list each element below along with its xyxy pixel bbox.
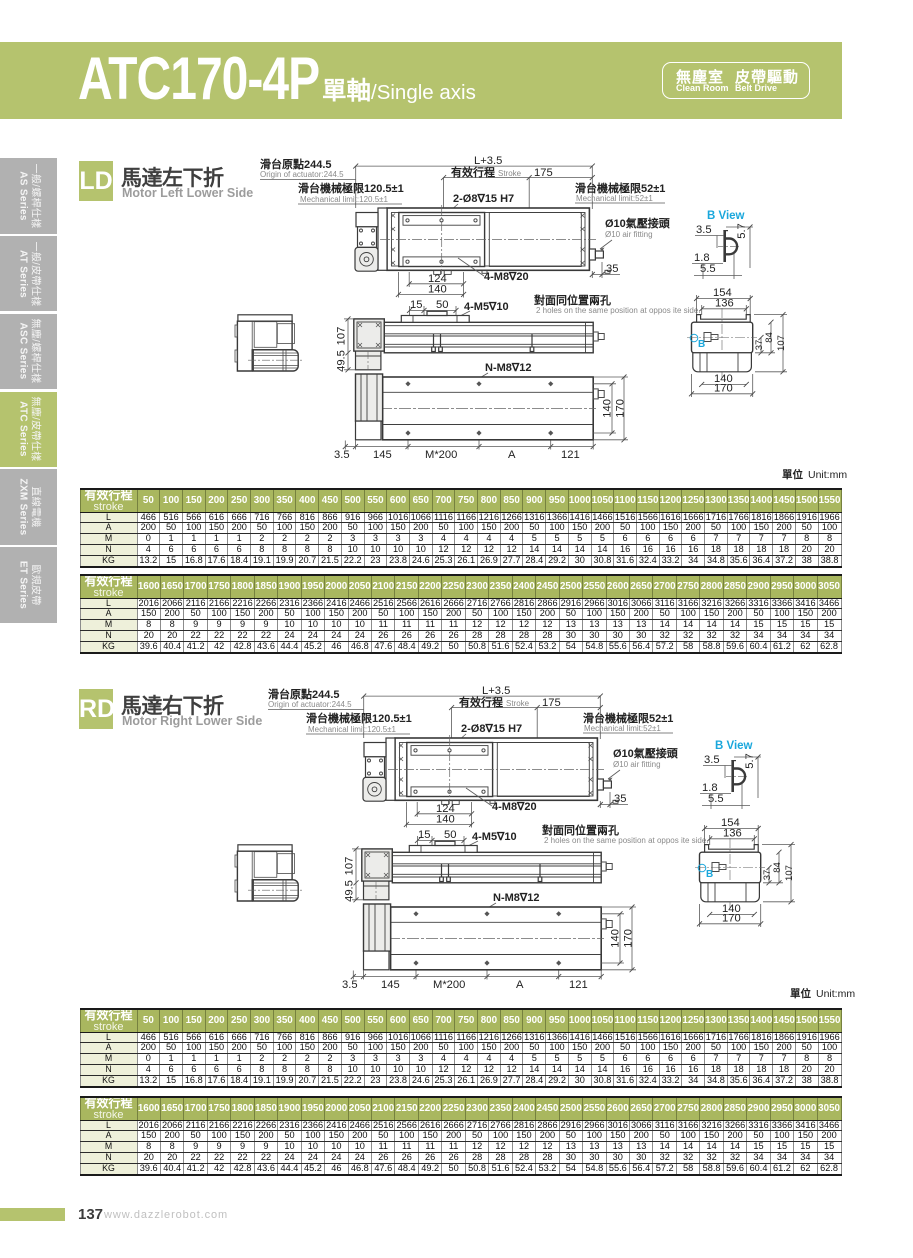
svg-text:L+3.5: L+3.5 [474,155,502,167]
svg-text:Unit:mm: Unit:mm [808,469,847,481]
svg-text:對面同位置兩孔: 對面同位置兩孔 [534,293,611,307]
svg-text:5.7: 5.7 [736,223,748,239]
svg-text:A: A [508,449,516,461]
svg-text:5.7: 5.7 [744,753,756,769]
svg-text:145: 145 [381,979,400,991]
svg-text:5.5: 5.5 [708,793,724,805]
svg-text:49.5: 49.5 [336,350,348,372]
svg-text:107: 107 [344,857,356,876]
svg-text:Stroke: Stroke [506,699,530,708]
svg-text:49.5: 49.5 [344,880,356,902]
svg-text:3.5: 3.5 [342,979,358,991]
svg-text:35: 35 [614,793,626,805]
svg-text:Ø10 air fitting: Ø10 air fitting [605,230,653,239]
svg-text:170: 170 [615,399,627,418]
svg-text:A: A [516,979,524,991]
svg-text:對面同位置兩孔: 對面同位置兩孔 [542,823,619,837]
svg-text:單位: 單位 [790,987,811,1000]
svg-text:15: 15 [418,829,430,841]
svg-text:N-M8∇12: N-M8∇12 [493,892,539,904]
svg-text:175: 175 [534,167,553,179]
svg-text:136: 136 [715,298,734,310]
svg-text:107: 107 [336,327,348,346]
svg-text:有效行程: 有效行程 [459,695,503,709]
svg-text:170: 170 [714,383,733,395]
svg-text:Ø10氣壓接頭: Ø10氣壓接頭 [605,216,671,230]
svg-text:B: B [706,869,713,880]
svg-text:Mechanical limit:52±1: Mechanical limit:52±1 [584,724,661,733]
svg-text:140: 140 [602,399,614,418]
svg-text:136: 136 [723,828,742,840]
svg-text:107: 107 [776,335,787,351]
svg-text:L+3.5: L+3.5 [482,685,510,697]
svg-text:B View: B View [715,740,753,752]
svg-text:3.5: 3.5 [696,224,712,236]
svg-text:145: 145 [373,449,392,461]
svg-text:滑台機械極限52±1: 滑台機械極限52±1 [575,181,665,195]
svg-text:Origin of actuator:244.5: Origin of actuator:244.5 [268,700,352,709]
svg-text:84: 84 [764,332,775,343]
svg-text:有效行程: 有效行程 [451,165,495,179]
svg-text:Unit:mm: Unit:mm [816,988,855,1000]
svg-text:Ø10氣壓接頭: Ø10氣壓接頭 [613,746,679,760]
svg-text:Mechanical limit:120.5±1: Mechanical limit:120.5±1 [300,195,389,204]
svg-text:140: 140 [436,814,455,826]
svg-text:滑台機械極限120.5±1: 滑台機械極限120.5±1 [298,181,404,195]
svg-text:35: 35 [606,263,618,275]
svg-text:滑台原點244.5: 滑台原點244.5 [260,157,332,171]
svg-text:140: 140 [610,929,622,948]
svg-text:4-M5∇10: 4-M5∇10 [472,831,517,843]
svg-text:107: 107 [784,865,795,881]
svg-text:84: 84 [772,862,783,873]
svg-text:Mechanical limit:52±1: Mechanical limit:52±1 [576,194,653,203]
svg-text:2-Ø8∇15 H7: 2-Ø8∇15 H7 [453,193,514,205]
svg-text:5.5: 5.5 [700,263,716,275]
svg-text:3.5: 3.5 [704,754,720,766]
svg-text:4-M8∇20: 4-M8∇20 [484,271,529,283]
svg-text:B View: B View [707,210,745,222]
svg-text:50: 50 [436,299,448,311]
svg-text:4-M5∇10: 4-M5∇10 [464,301,509,313]
svg-text:M*200: M*200 [433,979,465,991]
svg-text:Ø10 air fitting: Ø10 air fitting [613,760,661,769]
svg-text:Origin of actuator:244.5: Origin of actuator:244.5 [260,170,344,179]
svg-text:50: 50 [444,829,456,841]
svg-text:滑台機械極限52±1: 滑台機械極限52±1 [583,711,673,725]
svg-text:2 holes on the same position a: 2 holes on the same position at oppos it… [544,836,709,845]
svg-text:15: 15 [410,299,422,311]
svg-text:4-M8∇20: 4-M8∇20 [492,801,537,813]
svg-text:170: 170 [623,929,635,948]
svg-text:Mechanical limit:120.5±1: Mechanical limit:120.5±1 [308,725,397,734]
svg-text:滑台原點244.5: 滑台原點244.5 [268,687,340,701]
svg-text:121: 121 [561,449,580,461]
svg-text:3.5: 3.5 [334,449,350,461]
svg-text:M*200: M*200 [425,449,457,461]
svg-text:滑台機械極限120.5±1: 滑台機械極限120.5±1 [306,711,412,725]
svg-text:B: B [698,339,705,350]
svg-text:2-Ø8∇15 H7: 2-Ø8∇15 H7 [461,723,522,735]
svg-text:Stroke: Stroke [498,169,522,178]
svg-text:140: 140 [428,284,447,296]
svg-text:N-M8∇12: N-M8∇12 [485,362,531,374]
svg-text:121: 121 [569,979,588,991]
svg-text:單位: 單位 [782,468,803,481]
svg-text:2 holes on the same position a: 2 holes on the same position at oppos it… [536,306,701,315]
svg-text:170: 170 [722,913,741,925]
